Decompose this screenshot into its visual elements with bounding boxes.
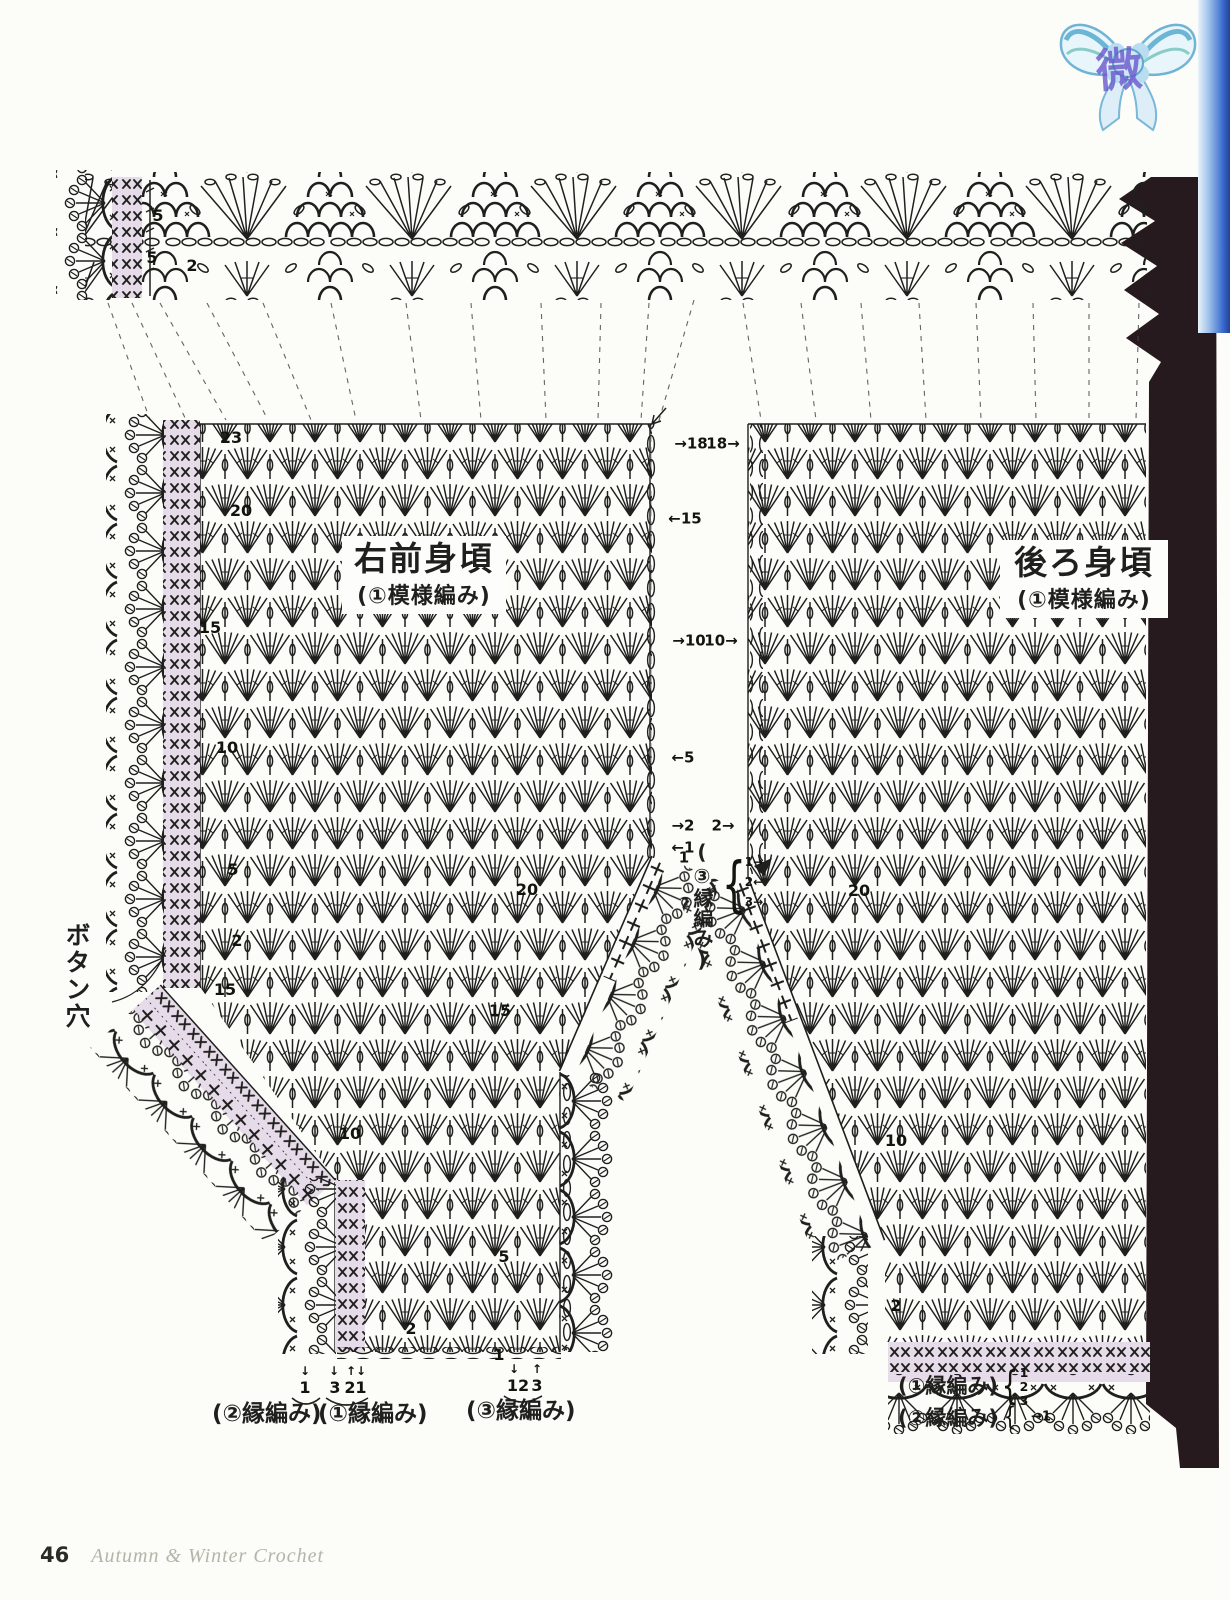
row-number: 2 [405, 1321, 416, 1337]
row-number: 10→ [704, 634, 737, 649]
row-number: 5 [227, 862, 238, 878]
row-number: 5 [498, 1249, 509, 1265]
right-panel-title: 後ろ身頃 [1008, 544, 1160, 582]
page-number: 46 [40, 1543, 69, 1567]
row-number: ↑↓ [346, 1365, 366, 1377]
row-number: ↓ [329, 1365, 339, 1377]
left-panel-title: 右前身頃 [350, 540, 498, 578]
row-number: 2 [186, 258, 197, 274]
buttonhole-label: ボタン穴 [64, 922, 89, 1030]
row-number: 2 [231, 933, 242, 949]
row-number: 18→ [706, 437, 739, 452]
row-number: 23 [220, 430, 242, 446]
row-number: ↓ [300, 1365, 310, 1377]
text-layer: 微 右前身頃 (①模様編み) 後ろ身頃 (①模様編み) ボタン穴 (③縁編み) … [0, 0, 1230, 1600]
row-number: →18 [674, 437, 707, 452]
row-number: 15 [199, 620, 221, 636]
right-panel-title-box: 後ろ身頃 (①模様編み) [1000, 540, 1168, 618]
bottom-right-edging1-caption: (①縁編み) [898, 1370, 998, 1400]
row-number: 2 [890, 1298, 901, 1314]
row-number: 1 [493, 1347, 504, 1363]
bottom-left-edging1-caption: (①縁編み) [318, 1394, 428, 1428]
row-number: 10 [885, 1133, 907, 1149]
row-number: ←1 [671, 841, 694, 856]
row-number: 3 [329, 1380, 340, 1396]
row-number: 1 [299, 1380, 310, 1396]
watermark-character: 微 [1094, 32, 1144, 101]
row-number: →10 [672, 634, 705, 649]
row-number: 20 [230, 503, 252, 519]
row-number: { [1004, 1403, 1017, 1429]
row-number: →2 [671, 819, 694, 834]
bottom-left-edging3-caption: (③縁編み) [466, 1391, 576, 1425]
row-number: 3→ [745, 896, 763, 908]
row-number: 5 [146, 250, 157, 266]
row-number: { [722, 854, 746, 915]
right-panel-subtitle: (①模様編み) [1008, 582, 1160, 614]
bottom-right-edging2-caption: (②縁編み) [898, 1402, 998, 1432]
row-number: 20 [516, 882, 538, 898]
row-number: 3 [1020, 1395, 1029, 1408]
row-number: ↓ [509, 1363, 519, 1375]
middle-edging-label: (③縁編み) [692, 840, 712, 972]
row-number: 15 [489, 1003, 511, 1019]
row-number: 10 [216, 740, 238, 756]
left-panel-title-box: 右前身頃 (①模様編み) [342, 536, 506, 614]
row-number: 2→ [711, 819, 734, 834]
row-number: ←5 [671, 751, 694, 766]
row-number: ←15 [668, 512, 701, 527]
page-footer: 46 Autumn & Winter Crochet [40, 1543, 324, 1568]
row-number: 1 [1020, 1367, 1029, 1380]
row-number: →1 [1031, 1411, 1051, 1424]
crochet-pattern-page: 微 右前身頃 (①模様編み) 後ろ身頃 (①模様編み) ボタン穴 (③縁編み) … [0, 0, 1230, 1600]
row-number: 15 [214, 982, 236, 998]
row-number: 2 [344, 1380, 355, 1396]
left-panel-subtitle: (①模様編み) [350, 578, 498, 610]
row-number: 1 [355, 1380, 366, 1396]
row-number: 3 [531, 1378, 542, 1394]
row-number: 2 [1020, 1381, 1029, 1394]
bottom-left-edging2-caption: (②縁編み) [212, 1394, 322, 1428]
book-title: Autumn & Winter Crochet [91, 1545, 324, 1568]
row-number: 12 [507, 1378, 529, 1394]
row-number: ↑ [532, 1363, 542, 1375]
row-number: 10 [339, 1126, 361, 1142]
row-number: 20 [848, 883, 870, 899]
row-number: 1→ [745, 856, 763, 868]
row-number: 2← [745, 876, 763, 888]
row-number: 5 [152, 208, 163, 224]
